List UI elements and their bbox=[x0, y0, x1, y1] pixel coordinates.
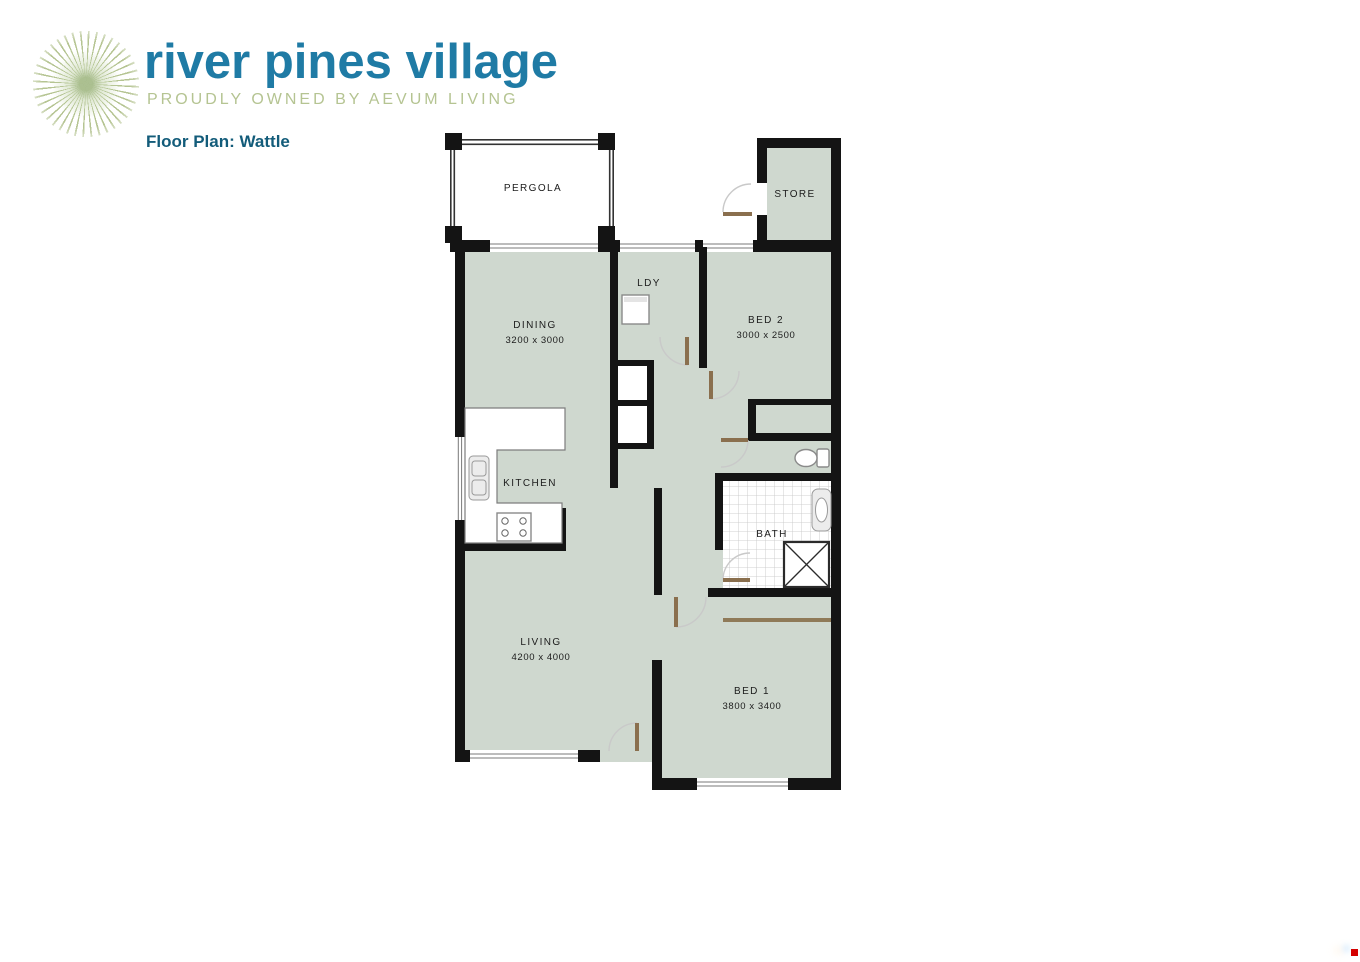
pergola-post bbox=[445, 133, 462, 150]
shower-icon bbox=[784, 542, 829, 587]
room-dimensions-living: 4200 x 4000 bbox=[512, 652, 571, 663]
pergola-post bbox=[598, 133, 615, 150]
living-window bbox=[470, 750, 578, 762]
vanity-basin-icon bbox=[812, 489, 831, 531]
stove-icon bbox=[497, 513, 531, 541]
room-label-kitchen: KITCHEN bbox=[503, 478, 557, 489]
room-label-laundry: LDY bbox=[637, 278, 661, 289]
room-label-bed1: BED 1 bbox=[734, 686, 770, 697]
hall-window bbox=[620, 240, 695, 252]
store-door bbox=[723, 184, 752, 216]
room-label-pergola: PERGOLA bbox=[504, 183, 562, 194]
floor-plan: PERGOLA STORE LDY DINING 3200 x 3000 BED… bbox=[440, 128, 852, 796]
room-dimensions-dining: 3200 x 3000 bbox=[506, 335, 565, 346]
bed2-window bbox=[703, 240, 753, 252]
dining-window bbox=[490, 240, 598, 252]
brand-title: river pines village bbox=[144, 38, 558, 87]
toilet-icon bbox=[795, 449, 829, 467]
room-dimensions-bed2: 3000 x 2500 bbox=[737, 330, 796, 341]
room-label-bath: BATH bbox=[756, 529, 788, 540]
page-title: Floor Plan: Wattle bbox=[146, 132, 290, 152]
room-label-bed2: BED 2 bbox=[748, 315, 784, 326]
red-marker bbox=[1351, 949, 1358, 956]
sink-icon bbox=[469, 456, 489, 500]
bed1-window bbox=[697, 778, 788, 790]
room-label-store: STORE bbox=[774, 189, 815, 200]
kitchen-window bbox=[455, 437, 465, 520]
room-dimensions-bed1: 3800 x 3400 bbox=[723, 701, 782, 712]
bed1-robe bbox=[723, 618, 831, 622]
starburst-logo-icon bbox=[33, 31, 139, 137]
washing-machine-icon bbox=[622, 295, 649, 324]
room-label-dining: DINING bbox=[513, 320, 556, 331]
room-label-living: LIVING bbox=[520, 637, 561, 648]
brand-tagline: PROUDLY OWNED BY AEVUM LIVING bbox=[147, 91, 519, 109]
